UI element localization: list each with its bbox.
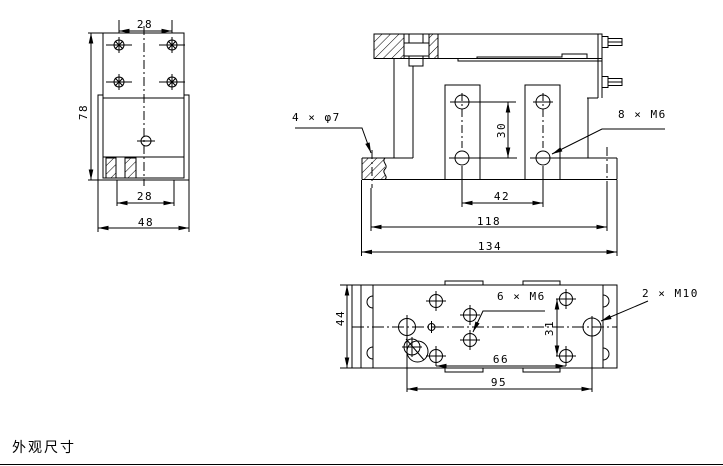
dim-134-value: 134 xyxy=(478,240,502,253)
drawing-sheet: 28 78 28 48 xyxy=(0,0,723,466)
hatch-strip xyxy=(106,158,116,178)
dim-66-value: 66 xyxy=(493,353,509,366)
label-thread-m6: 6 × M6 xyxy=(497,290,546,303)
dim-48-value: 48 xyxy=(138,216,154,229)
top-plate xyxy=(374,34,602,59)
label-thread-holes: 8 × M6 xyxy=(618,108,667,121)
slot-gap xyxy=(477,54,587,59)
counterbore-hole xyxy=(402,337,428,362)
dim-28-top-value: 28 xyxy=(137,18,153,31)
flange-hatch xyxy=(362,158,385,180)
thread-hole xyxy=(106,37,185,90)
technical-drawing: 28 78 28 48 xyxy=(0,0,723,466)
dim-44-value: 44 xyxy=(334,310,347,326)
leader-thread-holes xyxy=(552,129,665,154)
dim-42-value: 42 xyxy=(494,190,510,203)
hatch-strip xyxy=(125,158,136,178)
dim-78 xyxy=(88,33,103,180)
label-clearance-holes: 4 × φ7 xyxy=(292,111,341,124)
dim-95-value: 95 xyxy=(491,376,507,389)
side-bolt xyxy=(602,37,622,88)
leader-clearance-holes xyxy=(352,128,371,153)
top-plate-hatch xyxy=(429,34,438,59)
cap-screw xyxy=(404,34,429,66)
dim-28-bottom-value: 28 xyxy=(137,190,153,203)
dim-30-value: 30 xyxy=(495,122,508,138)
dim-31-value: 31 xyxy=(543,320,556,336)
center-hole xyxy=(137,136,155,146)
boss-holes xyxy=(449,93,596,165)
side-face-outline xyxy=(103,33,184,178)
label-thread-m10: 2 × M10 xyxy=(642,287,699,300)
dim-78-value: 78 xyxy=(77,104,90,120)
leader-thread-m6 xyxy=(473,311,545,332)
sheet-caption: 外观尺寸 xyxy=(12,440,76,456)
top-plate-hatch xyxy=(374,34,404,59)
dim-118-value: 118 xyxy=(477,215,501,228)
